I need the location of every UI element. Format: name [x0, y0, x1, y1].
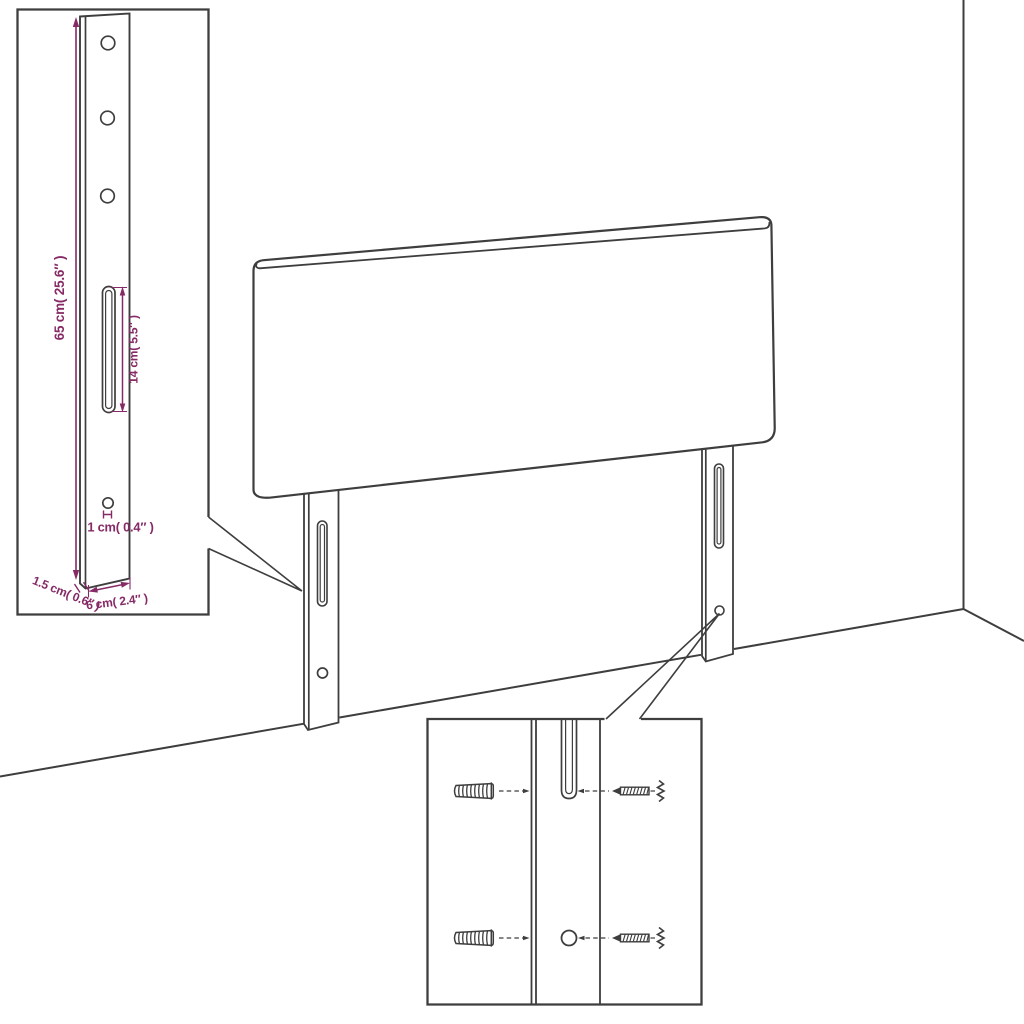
dim-hole-bracket: [104, 511, 112, 519]
floor-line-left: [0, 609, 964, 777]
inset-frame: [428, 719, 702, 1005]
detail-hole: [562, 931, 577, 946]
dim-hole: 1 cm( 0.4″ ): [87, 511, 153, 535]
floor-line-right: [964, 609, 1024, 641]
headboard-panel: [254, 217, 775, 498]
dim-slot-label: 14 cm( 5.5″ ): [127, 315, 141, 384]
bracket-slot: [103, 287, 116, 413]
product-diagram: 65 cm( 25.6″ ) 14 cm( 5.5″ ) 1 cm( 0.4″ …: [0, 0, 1024, 1024]
wall-plug-icon: [455, 782, 494, 799]
bracket-hole-1: [101, 36, 115, 50]
left-leg: [304, 478, 339, 730]
dim-height: 65 cm( 25.6″ ): [52, 17, 79, 580]
dim-hole-label: 1 cm( 0.4″ ): [87, 519, 153, 534]
detail-slot: [562, 719, 577, 799]
bracket-bottom-hole: [103, 498, 113, 508]
detail-leg: [532, 719, 601, 1005]
mounting-detail-inset: [428, 614, 720, 1005]
wall-plug-icon: [455, 929, 494, 946]
screw-icon: [612, 781, 664, 802]
bracket-hole-3: [101, 189, 115, 203]
callout-wedge-right: [606, 614, 720, 720]
right-leg: [702, 433, 733, 662]
callout-wedge-left: [209, 517, 303, 591]
headboard-technical-drawing: 65 cm( 25.6″ ) 14 cm( 5.5″ ) 1 cm( 0.4″ …: [0, 0, 1024, 1024]
screw-icon: [612, 928, 664, 949]
dim-height-label: 65 cm( 25.6″ ): [52, 256, 67, 341]
dim-width-label: 6 cm( 2.4″ ): [85, 591, 148, 612]
bracket-hole-2: [101, 111, 115, 125]
